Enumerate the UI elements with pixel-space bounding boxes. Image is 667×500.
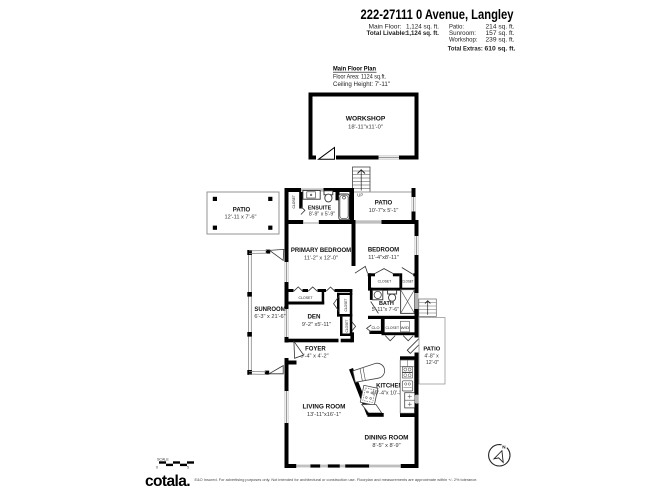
svg-text:LIVING ROOM: LIVING ROOM xyxy=(303,404,346,411)
svg-text:BEDROOM: BEDROOM xyxy=(368,248,399,254)
svg-text:13'-11"x16'-1": 13'-11"x16'-1" xyxy=(307,412,341,418)
svg-text:1,124 sq. ft.: 1,124 sq. ft. xyxy=(406,31,439,37)
svg-text:DEN: DEN xyxy=(307,314,321,321)
svg-text:Main Floor:: Main Floor: xyxy=(369,24,402,30)
svg-text:CLOSET: CLOSET xyxy=(402,278,414,283)
svg-text:1,124 sq. ft.: 1,124 sq. ft. xyxy=(406,24,439,30)
svg-text:Total Livable:: Total Livable: xyxy=(367,31,408,37)
svg-text:4'-8" x: 4'-8" x xyxy=(424,354,439,360)
svg-text:CLOSET: CLOSET xyxy=(345,319,349,333)
svg-text:PATIO: PATIO xyxy=(423,347,440,353)
svg-text:Sunroom:: Sunroom: xyxy=(449,31,476,37)
svg-text:CLOSET: CLOSET xyxy=(386,325,400,330)
svg-text:6'-3" x 21'-6": 6'-3" x 21'-6" xyxy=(254,314,285,320)
svg-text:9'-2" x5'-11": 9'-2" x5'-11" xyxy=(302,322,331,328)
svg-text:SCALE: SCALE xyxy=(157,458,169,462)
svg-text:FOYER: FOYER xyxy=(305,347,326,353)
svg-text:cotala.: cotala. xyxy=(145,473,190,490)
svg-text:Workshop:: Workshop: xyxy=(449,37,478,43)
svg-text:PATIO: PATIO xyxy=(375,201,393,207)
svg-text:5'-4" x 4'-2": 5'-4" x 4'-2" xyxy=(300,354,328,360)
svg-text:PATIO: PATIO xyxy=(233,208,251,214)
svg-text:Ceiling Height: 7'-11": Ceiling Height: 7'-11" xyxy=(333,81,390,88)
svg-text:Main Floor Plan: Main Floor Plan xyxy=(333,66,376,73)
svg-text:12'-0": 12'-0" xyxy=(426,360,439,366)
svg-text:ENSUITE: ENSUITE xyxy=(308,205,332,211)
svg-text:239 sq. ft.: 239 sq. ft. xyxy=(486,37,515,43)
svg-text:CLOSET: CLOSET xyxy=(292,194,296,208)
svg-text:CLOSET: CLOSET xyxy=(344,298,348,312)
svg-text:11'-4"x8'-11": 11'-4"x8'-11" xyxy=(368,255,398,261)
svg-text:KITCHEN: KITCHEN xyxy=(376,384,403,390)
svg-text:UP: UP xyxy=(357,192,363,197)
svg-text:12'-11 x 7'-6": 12'-11 x 7'-6" xyxy=(224,215,256,221)
svg-text:10'-7"x 5'-1": 10'-7"x 5'-1" xyxy=(369,208,399,214)
svg-text:5: 5 xyxy=(187,466,189,470)
svg-text:222-27111 0 Avenue, Langley: 222-27111 0 Avenue, Langley xyxy=(361,7,514,22)
svg-text:8'-9" x 5'-9": 8'-9" x 5'-9" xyxy=(309,212,335,218)
svg-text:WORKSHOP: WORKSHOP xyxy=(346,116,386,123)
svg-text:214 sq. ft.: 214 sq. ft. xyxy=(486,24,515,30)
svg-text:W/D: W/D xyxy=(401,325,410,330)
svg-text:PRIMARY BEDROOM: PRIMARY BEDROOM xyxy=(291,248,351,254)
svg-text:0: 0 xyxy=(156,466,158,470)
svg-text:Total Extras:: Total Extras: xyxy=(448,47,483,53)
svg-text:10'-4"x 10'-3": 10'-4"x 10'-3" xyxy=(372,390,404,396)
svg-text:DINING ROOM: DINING ROOM xyxy=(364,435,408,442)
svg-text:E&O Insured. For advertising p: E&O Insured. For advertising purposes on… xyxy=(195,477,478,482)
svg-text:18'-11"x11'-0": 18'-11"x11'-0" xyxy=(348,125,383,131)
svg-text:8'-5" x 8'-9": 8'-5" x 8'-9" xyxy=(372,443,400,449)
svg-text:CLOSET: CLOSET xyxy=(378,278,392,283)
svg-text:SUNROOM: SUNROOM xyxy=(254,307,285,313)
svg-text:CLOSET: CLOSET xyxy=(299,295,313,300)
svg-text:11'-2" x 12'-0": 11'-2" x 12'-0" xyxy=(304,256,338,262)
svg-text:Floor Area: 1124 sq.ft.: Floor Area: 1124 sq.ft. xyxy=(333,74,386,81)
svg-text:Patio:: Patio: xyxy=(449,24,464,30)
svg-text:157 sq. ft.: 157 sq. ft. xyxy=(486,31,515,37)
svg-text:610 sq. ft.: 610 sq. ft. xyxy=(485,47,516,53)
svg-text:CLO: CLO xyxy=(372,325,380,330)
